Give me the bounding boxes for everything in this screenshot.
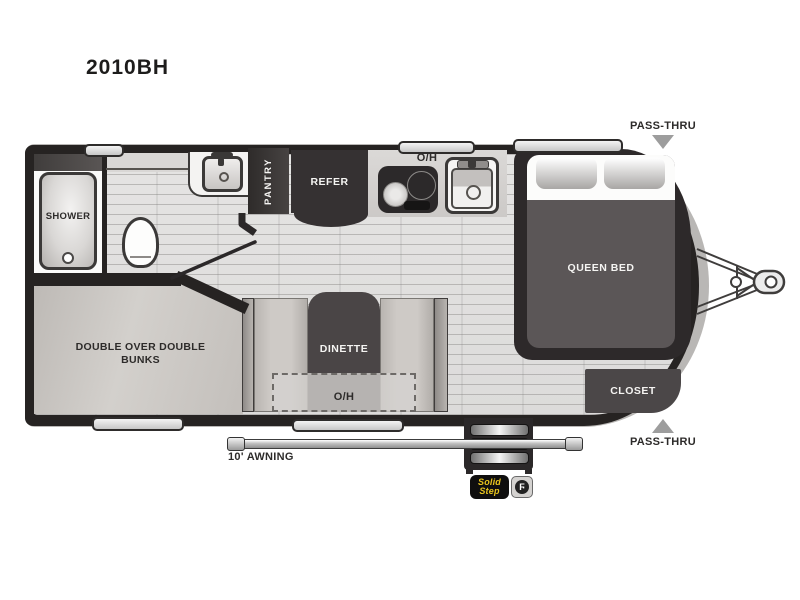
refrigerator: REFER <box>291 150 368 213</box>
awning-rail <box>229 439 581 449</box>
bathroom-sink-drain-icon <box>219 172 229 182</box>
kitchen-tap-icon <box>468 157 476 168</box>
window <box>398 141 475 154</box>
hitch-coupler-hole-icon <box>766 277 777 288</box>
pantry-label: PANTRY <box>248 148 289 214</box>
awning-label: 10' AWNING <box>228 451 294 463</box>
shower-drain-icon <box>62 252 74 264</box>
window <box>84 144 124 157</box>
step-tread <box>470 424 529 436</box>
dinette-bench-back <box>434 298 448 412</box>
dinette-overhead-label: O/H <box>272 391 416 403</box>
pillow-icon <box>604 157 665 189</box>
lci-logo-icon: Ϝ <box>511 476 533 498</box>
hitch-jack-icon <box>731 277 741 287</box>
queen-bed-label: QUEEN BED <box>527 262 675 274</box>
pillow-icon <box>536 157 597 189</box>
dinette-bench-back <box>242 298 254 412</box>
dinette-label: DINETTE <box>308 343 380 355</box>
bunks-label: DOUBLE OVER DOUBLEBUNKS <box>48 341 233 367</box>
step-leg <box>466 469 473 474</box>
step-tread <box>470 452 529 464</box>
closet-label: CLOSET <box>585 385 681 397</box>
step-leg <box>525 469 532 474</box>
pass-thru-top-label: PASS-THRU <box>618 120 708 132</box>
shower-label: SHOWER <box>39 211 97 222</box>
awning-end-cap <box>227 437 245 451</box>
bathroom-floor-edge <box>106 168 190 170</box>
window <box>92 417 184 431</box>
burner-icon <box>407 171 436 200</box>
window <box>513 139 623 153</box>
toilet-icon <box>122 217 159 268</box>
hitch-coupler-icon <box>754 271 784 293</box>
pass-thru-arrow-down-icon <box>652 135 674 149</box>
solid-step-badge: Solid Step <box>470 475 509 499</box>
window <box>292 419 404 432</box>
kitchen-sink-drain-icon <box>466 185 481 200</box>
model-title: 2010BH <box>86 56 169 80</box>
toilet-seam <box>130 256 151 258</box>
stove-control-panel <box>404 201 430 210</box>
awning-end-cap <box>565 437 583 451</box>
floorplan-page: 2010BH SHOWER PANTRY REFER O/H QUEEN BED… <box>0 0 800 600</box>
bathroom-wall <box>102 154 107 278</box>
pass-thru-bottom-label: PASS-THRU <box>618 436 708 448</box>
bathroom-tap-icon <box>218 158 224 166</box>
pass-thru-arrow-up-icon <box>652 419 674 433</box>
bathroom-wall-bottom <box>25 273 181 286</box>
